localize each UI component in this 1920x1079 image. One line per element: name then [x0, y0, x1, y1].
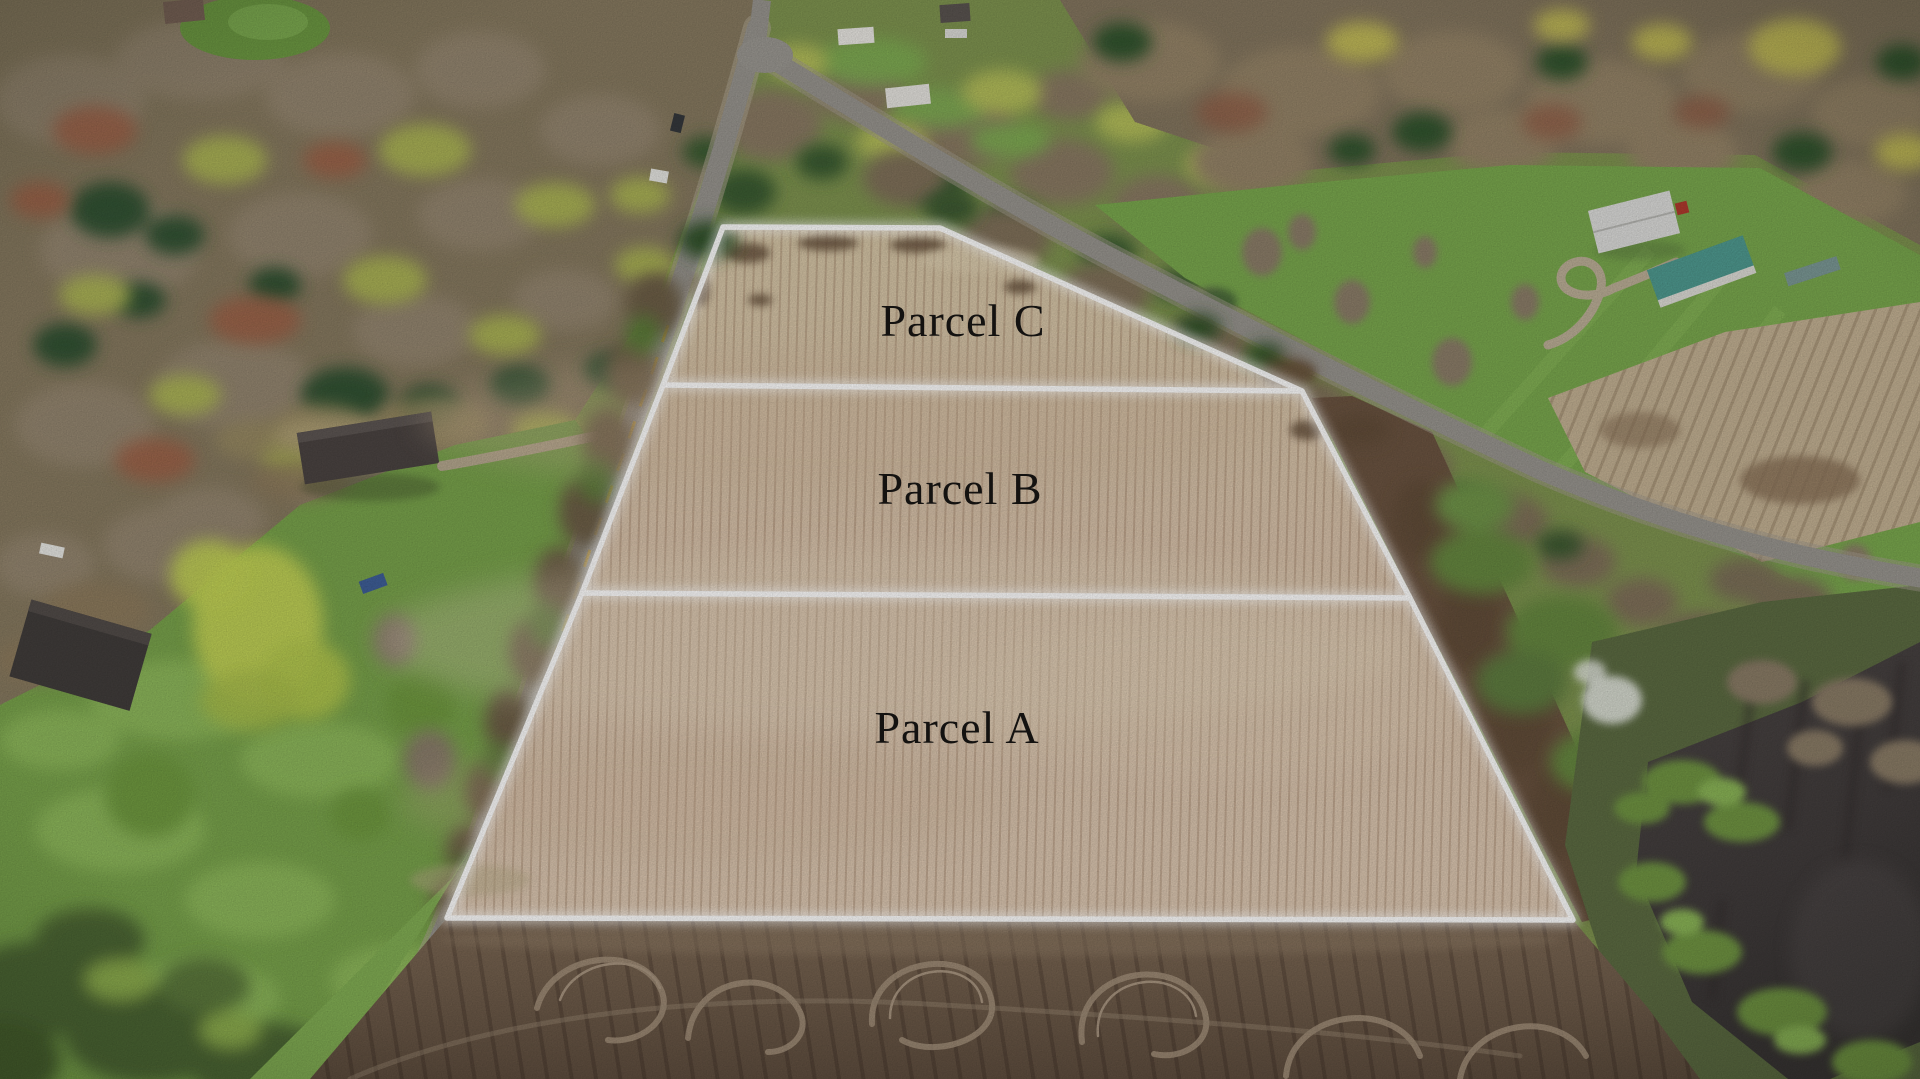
- scene-svg: Parcel C Parcel B Parcel A: [0, 0, 1920, 1079]
- vignette: [0, 0, 1920, 1079]
- aerial-photo: Parcel C Parcel B Parcel A: [0, 0, 1920, 1079]
